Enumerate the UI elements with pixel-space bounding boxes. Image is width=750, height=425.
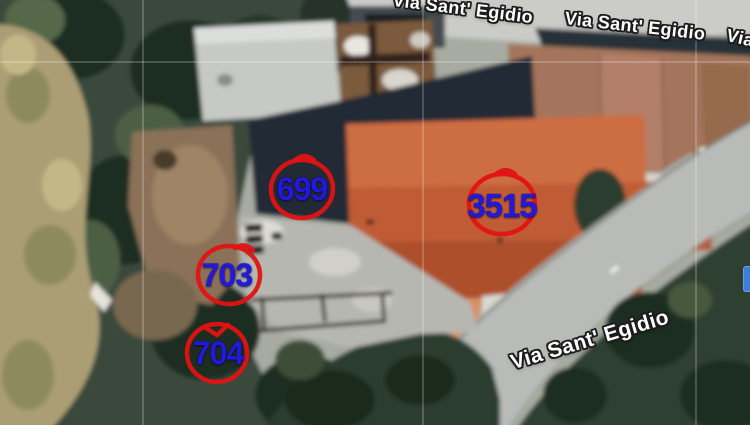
parcel-number: 704 bbox=[193, 335, 243, 372]
parcel-marker-699[interactable]: 699 bbox=[252, 143, 352, 235]
parcel-marker-3515[interactable]: 3515 bbox=[452, 160, 552, 252]
map-marker-partial[interactable] bbox=[743, 266, 750, 292]
satellite-map[interactable]: Via Sant' Egidio Via Sant' Egidio Via Sa… bbox=[0, 0, 750, 425]
parcel-marker-704[interactable]: 704 bbox=[168, 307, 268, 399]
parcel-number: 703 bbox=[202, 257, 252, 294]
satellite-imagery bbox=[0, 0, 750, 425]
parcel-number: 3515 bbox=[467, 187, 536, 225]
parcel-number: 699 bbox=[277, 171, 327, 208]
